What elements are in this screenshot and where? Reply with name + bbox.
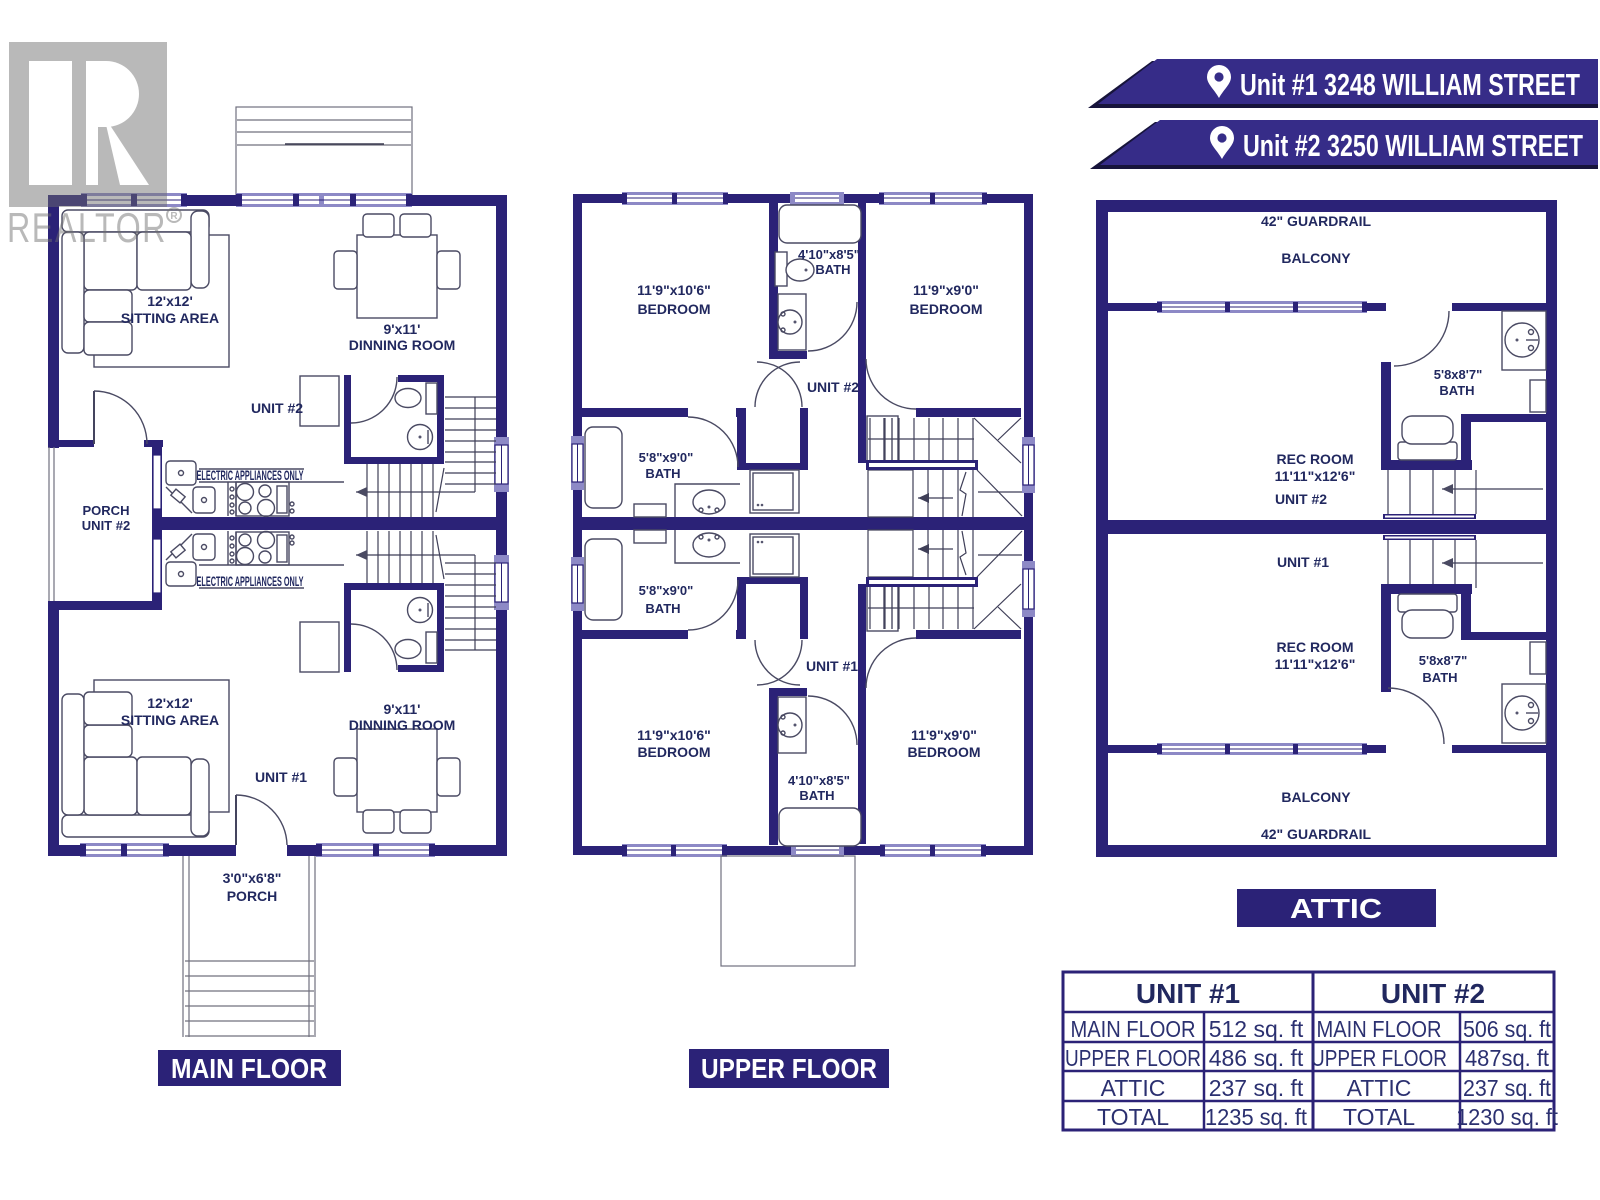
svg-text:UNIT #2: UNIT #2 (1381, 978, 1485, 1009)
svg-text:BATH: BATH (799, 788, 834, 803)
svg-text:11'9"x10'6": 11'9"x10'6" (637, 727, 711, 743)
svg-text:UNIT #2: UNIT #2 (251, 400, 303, 416)
svg-text:ATTIC: ATTIC (1347, 1075, 1412, 1101)
svg-text:PORCH: PORCH (83, 503, 130, 518)
svg-text:11'9"x9'0": 11'9"x9'0" (913, 282, 979, 298)
svg-text:SITTING AREA: SITTING AREA (121, 712, 219, 728)
svg-text:9'x11': 9'x11' (383, 321, 420, 337)
svg-text:ELECTRIC APPLIANCES ONLY: ELECTRIC APPLIANCES ONLY (197, 573, 304, 589)
svg-text:4'10"x8'5": 4'10"x8'5" (798, 247, 860, 262)
svg-text:UPPER FLOOR: UPPER FLOOR (1065, 1045, 1201, 1071)
svg-text:BEDROOM: BEDROOM (907, 744, 980, 760)
svg-text:Unit #2 3250 WILLIAM STREET: Unit #2 3250 WILLIAM STREET (1243, 128, 1583, 163)
svg-text:DINNING ROOM: DINNING ROOM (349, 337, 456, 353)
svg-text:REC ROOM: REC ROOM (1277, 639, 1354, 655)
svg-text:BATH: BATH (1439, 383, 1474, 398)
svg-text:MAIN FLOOR: MAIN FLOOR (1071, 1016, 1196, 1042)
svg-text:BATH: BATH (645, 601, 680, 616)
svg-text:11'9"x9'0": 11'9"x9'0" (911, 727, 977, 743)
svg-text:11'11"x12'6": 11'11"x12'6" (1275, 468, 1356, 484)
svg-text:5'8x8'7": 5'8x8'7" (1434, 367, 1483, 382)
svg-text:UNIT #2: UNIT #2 (807, 379, 859, 395)
svg-text:BEDROOM: BEDROOM (637, 744, 710, 760)
svg-text:42" GUARDRAIL: 42" GUARDRAIL (1261, 826, 1372, 842)
svg-text:5'8x8'7": 5'8x8'7" (1419, 653, 1468, 668)
svg-text:UNIT #1: UNIT #1 (1277, 554, 1329, 570)
svg-text:5'8"x9'0": 5'8"x9'0" (639, 583, 694, 598)
svg-text:5'8"x9'0": 5'8"x9'0" (639, 450, 694, 465)
svg-text:UNIT #1: UNIT #1 (255, 769, 307, 785)
svg-text:12'x12': 12'x12' (147, 293, 193, 309)
svg-text:TOTAL: TOTAL (1343, 1104, 1415, 1130)
svg-text:3'0"x6'8": 3'0"x6'8" (223, 870, 282, 886)
svg-text:1230 sq. ft: 1230 sq. ft (1456, 1104, 1559, 1130)
svg-text:BATH: BATH (1422, 670, 1457, 685)
svg-text:UPPER FLOOR: UPPER FLOOR (1311, 1045, 1447, 1071)
svg-text:UPPER FLOOR: UPPER FLOOR (701, 1053, 877, 1084)
svg-text:ATTIC: ATTIC (1290, 893, 1382, 924)
svg-text:BEDROOM: BEDROOM (637, 301, 710, 317)
svg-text:REC ROOM: REC ROOM (1277, 451, 1354, 467)
svg-text:Unit #1 3248 WILLIAM STREET: Unit #1 3248 WILLIAM STREET (1240, 67, 1580, 102)
svg-text:512 sq. ft: 512 sq. ft (1209, 1016, 1304, 1042)
svg-text:BALCONY: BALCONY (1281, 250, 1351, 266)
svg-text:BEDROOM: BEDROOM (909, 301, 982, 317)
svg-text:BATH: BATH (815, 262, 850, 277)
svg-text:506 sq. ft: 506 sq. ft (1463, 1016, 1552, 1042)
svg-text:237 sq. ft: 237 sq. ft (1209, 1075, 1304, 1101)
svg-text:1235 sq. ft: 1235 sq. ft (1205, 1104, 1308, 1130)
svg-text:UNIT #1: UNIT #1 (1136, 978, 1240, 1009)
svg-text:4'10"x8'5": 4'10"x8'5" (788, 773, 850, 788)
svg-text:PORCH: PORCH (227, 888, 278, 904)
svg-text:MAIN FLOOR: MAIN FLOOR (1317, 1016, 1442, 1042)
svg-text:R: R (170, 211, 178, 222)
svg-text:11'11"x12'6": 11'11"x12'6" (1275, 656, 1356, 672)
svg-text:12'x12': 12'x12' (147, 695, 193, 711)
svg-text:UNIT #1: UNIT #1 (806, 658, 858, 674)
svg-text:UNIT #2: UNIT #2 (82, 518, 130, 533)
svg-text:ATTIC: ATTIC (1101, 1075, 1166, 1101)
svg-text:487sq. ft: 487sq. ft (1465, 1045, 1550, 1071)
svg-text:REALTOR: REALTOR (7, 204, 167, 251)
svg-text:SITTING AREA: SITTING AREA (121, 310, 219, 326)
svg-text:42" GUARDRAIL: 42" GUARDRAIL (1261, 213, 1372, 229)
svg-text:BALCONY: BALCONY (1281, 789, 1351, 805)
svg-text:ELECTRIC APPLIANCES ONLY: ELECTRIC APPLIANCES ONLY (197, 467, 304, 483)
svg-text:UNIT #2: UNIT #2 (1275, 491, 1327, 507)
svg-text:TOTAL: TOTAL (1097, 1104, 1169, 1130)
svg-text:237 sq. ft: 237 sq. ft (1463, 1075, 1552, 1101)
svg-text:486 sq. ft: 486 sq. ft (1209, 1045, 1304, 1071)
svg-text:DINNING ROOM: DINNING ROOM (349, 717, 456, 733)
svg-text:9'x11': 9'x11' (383, 701, 420, 717)
svg-text:11'9"x10'6": 11'9"x10'6" (637, 282, 711, 298)
svg-text:MAIN FLOOR: MAIN FLOOR (171, 1053, 327, 1084)
svg-text:BATH: BATH (645, 466, 680, 481)
